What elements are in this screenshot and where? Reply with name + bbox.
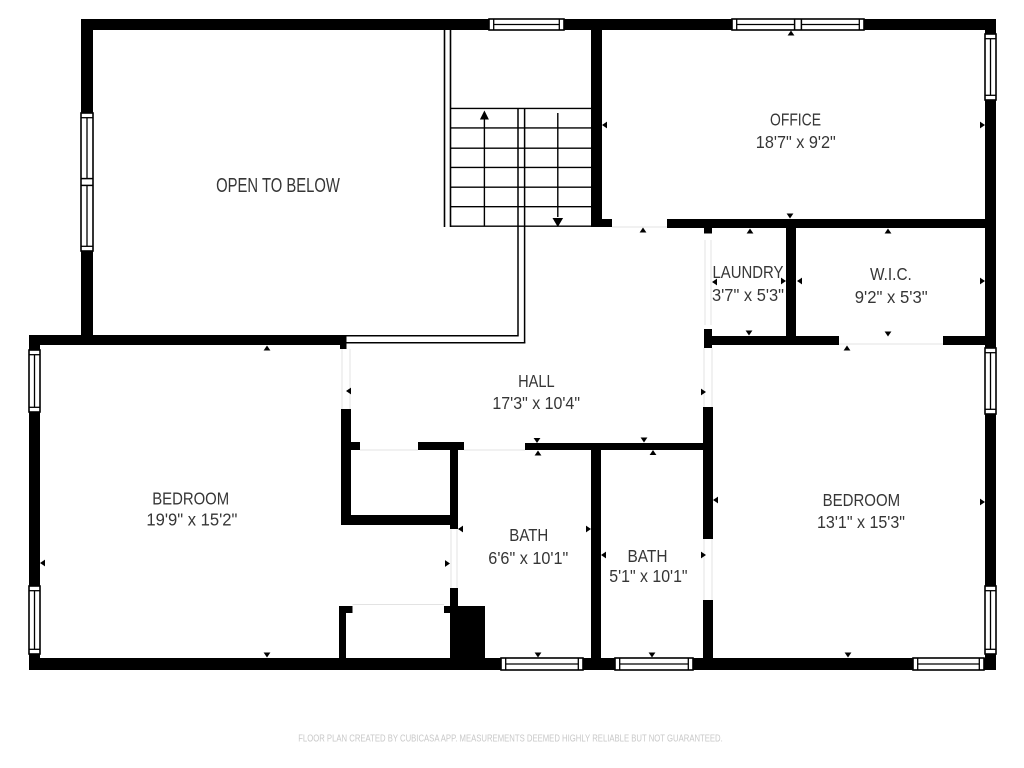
svg-text:BATH: BATH (628, 546, 668, 566)
svg-text:W.I.C.: W.I.C. (870, 264, 912, 284)
svg-text:HALL: HALL (518, 371, 555, 391)
svg-text:OPEN TO BELOW: OPEN TO BELOW (216, 175, 340, 197)
svg-text:9'2" x 5'3": 9'2" x 5'3" (855, 287, 928, 307)
svg-text:OFFICE: OFFICE (770, 110, 821, 130)
svg-text:LAUNDRY: LAUNDRY (713, 262, 784, 282)
svg-text:3'7" x 5'3": 3'7" x 5'3" (712, 285, 784, 305)
svg-text:BEDROOM: BEDROOM (152, 489, 229, 509)
svg-text:17'3" x 10'4": 17'3" x 10'4" (492, 393, 580, 413)
svg-text:19'9" x 15'2": 19'9" x 15'2" (146, 510, 237, 530)
svg-text:6'6" x 10'1": 6'6" x 10'1" (488, 548, 568, 568)
svg-text:FLOOR PLAN CREATED BY CUBICASA: FLOOR PLAN CREATED BY CUBICASA APP. MEAS… (298, 734, 723, 745)
svg-text:5'1" x 10'1": 5'1" x 10'1" (609, 566, 687, 586)
svg-text:13'1" x 15'3": 13'1" x 15'3" (817, 512, 905, 532)
svg-text:BEDROOM: BEDROOM (823, 490, 901, 510)
svg-text:18'7" x 9'2": 18'7" x 9'2" (756, 132, 836, 152)
svg-text:BATH: BATH (509, 525, 548, 545)
